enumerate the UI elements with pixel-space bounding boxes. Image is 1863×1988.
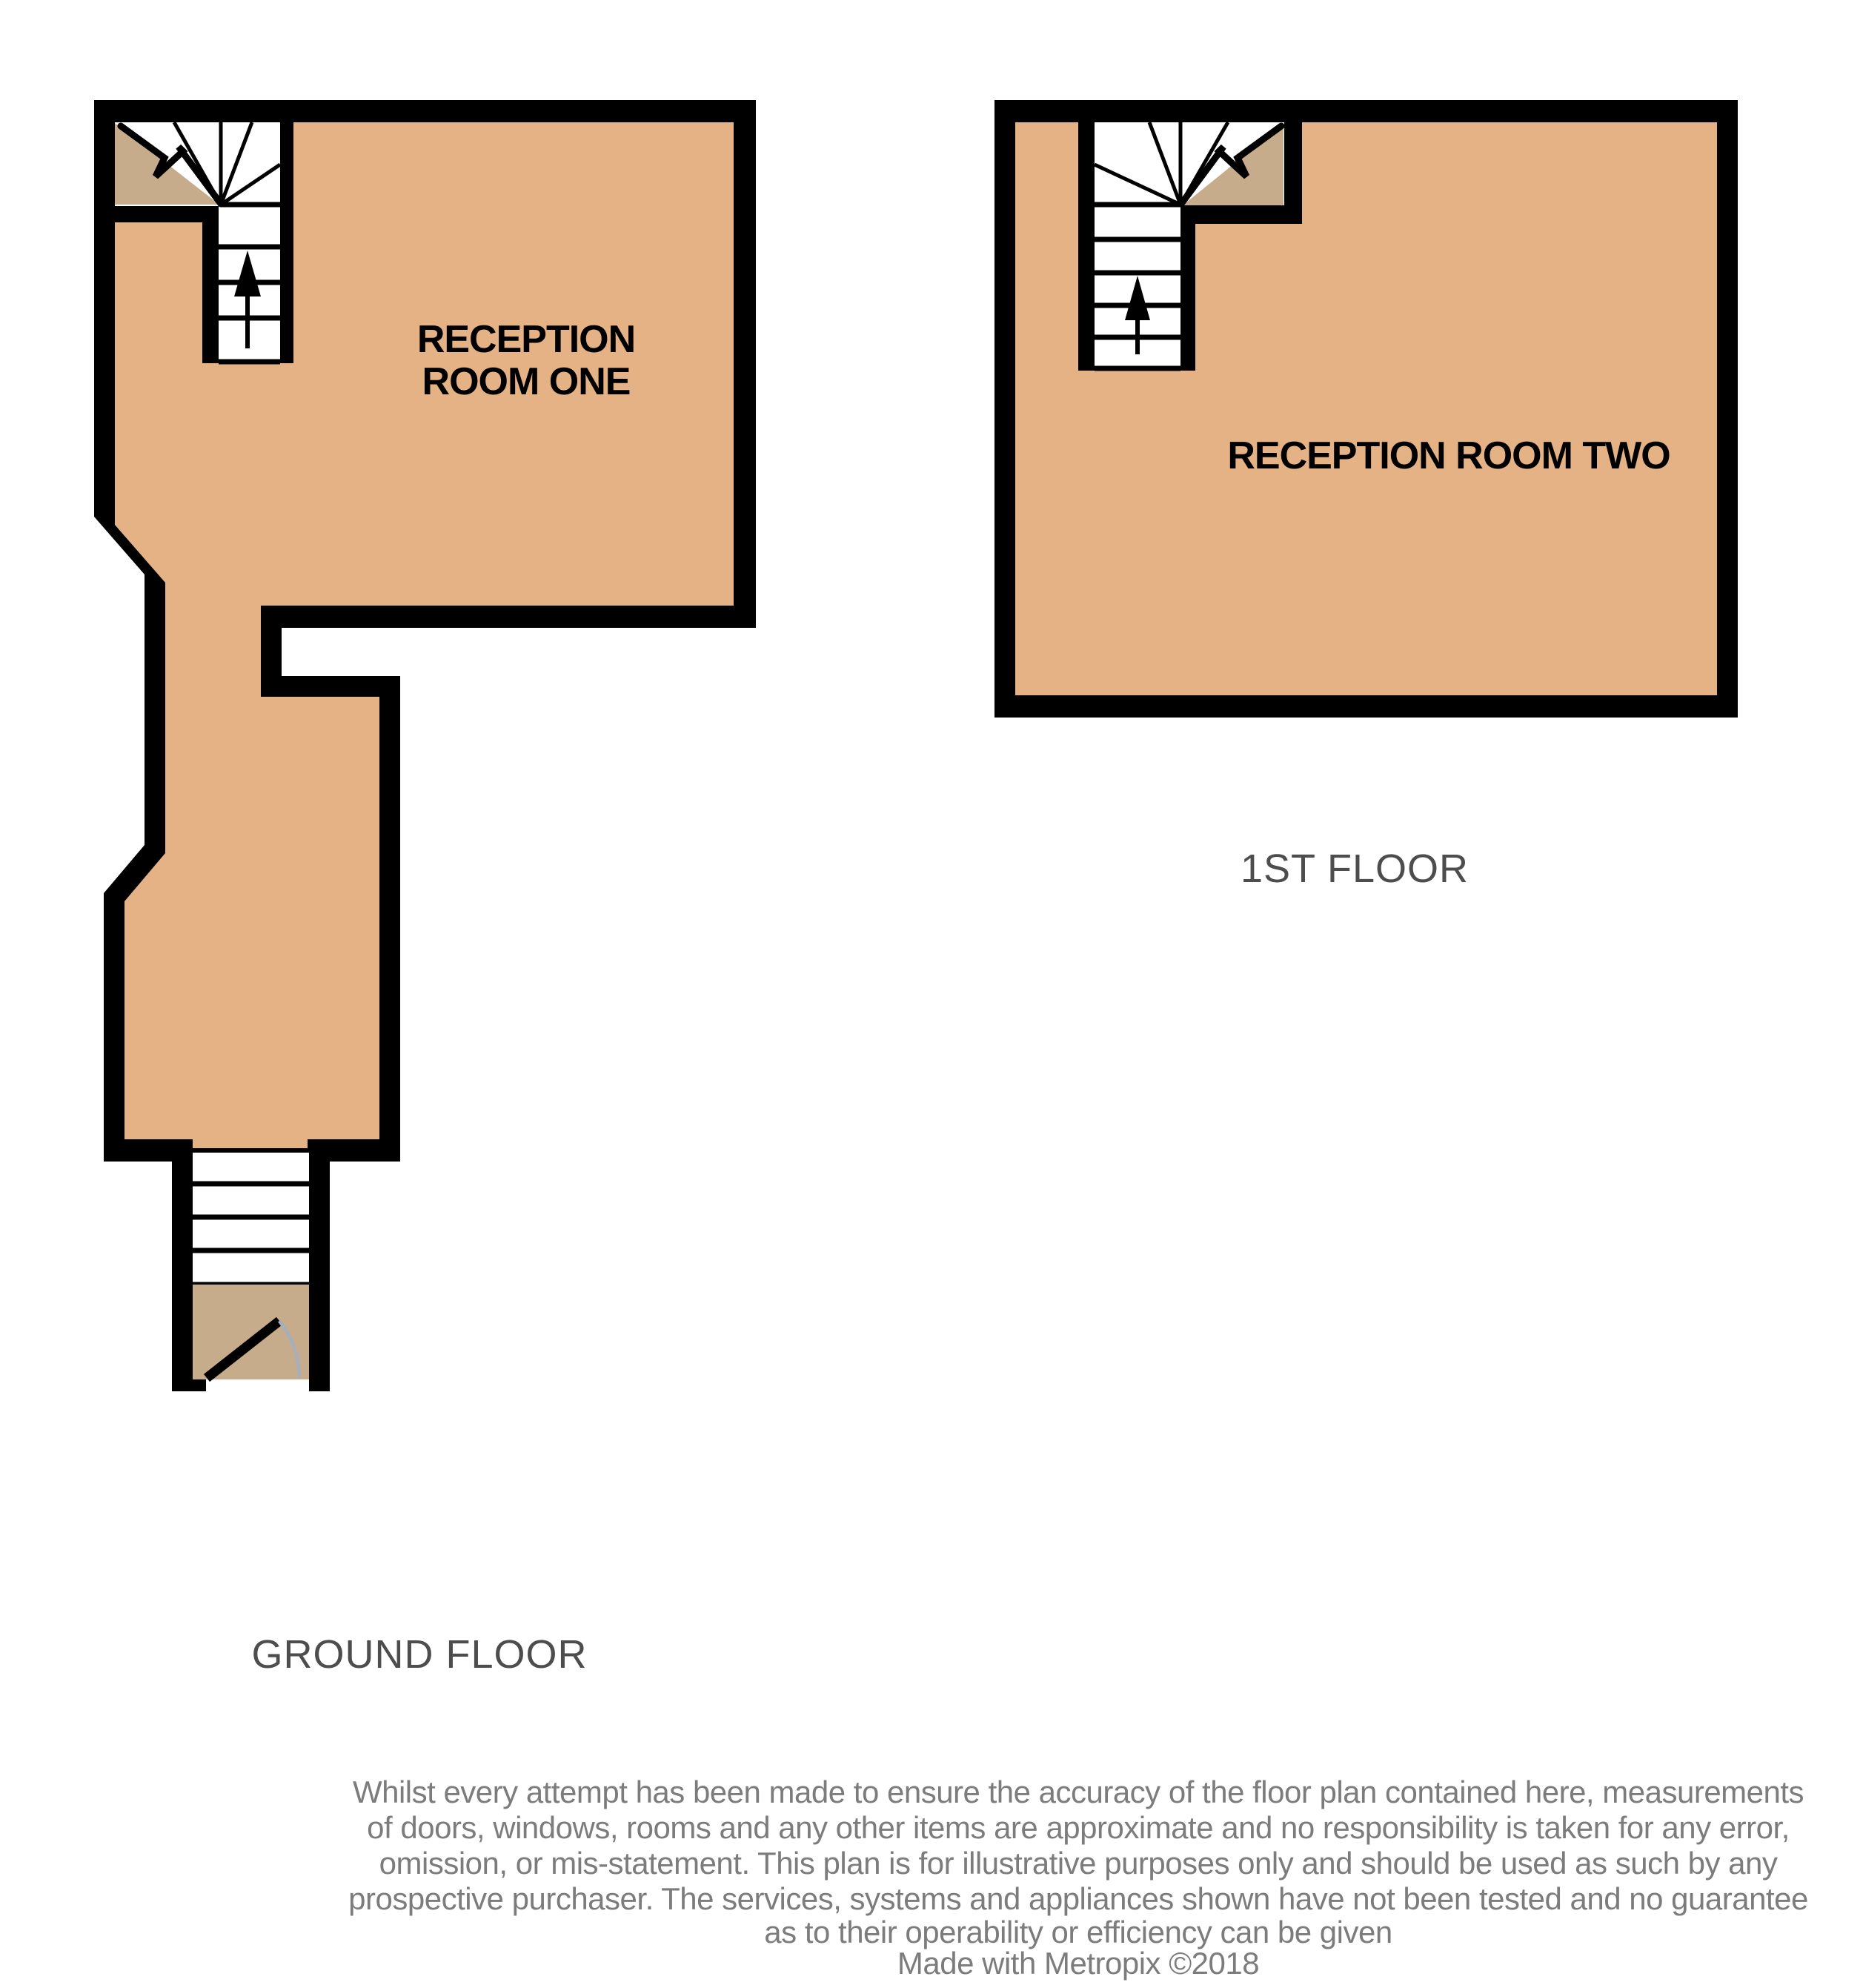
room-label-reception-one-line1: RECEPTION: [417, 318, 635, 361]
disclaimer-line: as to their operability or efficiency ca…: [764, 1915, 1392, 1949]
first-floor-plan: RECEPTION ROOM TWO 1ST FLOOR: [994, 100, 1738, 891]
wall-room-bottom: [261, 606, 756, 628]
wall-top: [994, 100, 1738, 122]
room-label-reception-one-line2: ROOM ONE: [422, 360, 631, 403]
wall-stair-divider: [1180, 205, 1195, 371]
wall-stair-enclosure-bottom: [1180, 205, 1302, 224]
ground-floor-plan: RECEPTION ROOM ONE GROUND FLOOR: [94, 100, 756, 1677]
floorplan-page: RECEPTION ROOM ONE GROUND FLOOR: [0, 0, 1863, 1988]
wall-right: [1717, 100, 1738, 718]
wall-corridor-right-upper: [261, 606, 282, 697]
wall-right: [734, 100, 756, 628]
wall-stair-divider: [202, 206, 219, 363]
disclaimer-line: omission, or mis-statement. This plan is…: [379, 1846, 1778, 1881]
wall-bottom: [994, 695, 1738, 718]
wall-corridor-right: [379, 676, 400, 1162]
disclaimer-line: Whilst every attempt has been made to en…: [353, 1775, 1804, 1809]
wall-stair-enclosure-right: [280, 122, 293, 363]
wall-stair-enclosure-right: [1284, 122, 1302, 224]
disclaimer-line: prospective purchaser. The services, sys…: [348, 1881, 1808, 1916]
credit-line: Made with Metropix ©2018: [897, 1946, 1259, 1981]
disclaimer-block: Whilst every attempt has been made to en…: [348, 1775, 1808, 1981]
wall-left: [994, 100, 1015, 718]
ground-floor-title: GROUND FLOOR: [251, 1632, 587, 1677]
disclaimer-line: of doors, windows, rooms and any other i…: [367, 1810, 1790, 1845]
wall-top: [94, 100, 756, 122]
floorplan-drawing: RECEPTION ROOM ONE GROUND FLOOR: [0, 0, 1863, 1988]
first-floor-title: 1ST FLOOR: [1241, 846, 1469, 891]
wall-stairwell-right: [309, 1139, 330, 1391]
room-label-reception-two: RECEPTION ROOM TWO: [1227, 434, 1670, 477]
entrance-landing: [193, 1285, 309, 1379]
wall-stair-enclosure-left: [1078, 122, 1095, 371]
wall-stairwell-left: [172, 1139, 193, 1391]
